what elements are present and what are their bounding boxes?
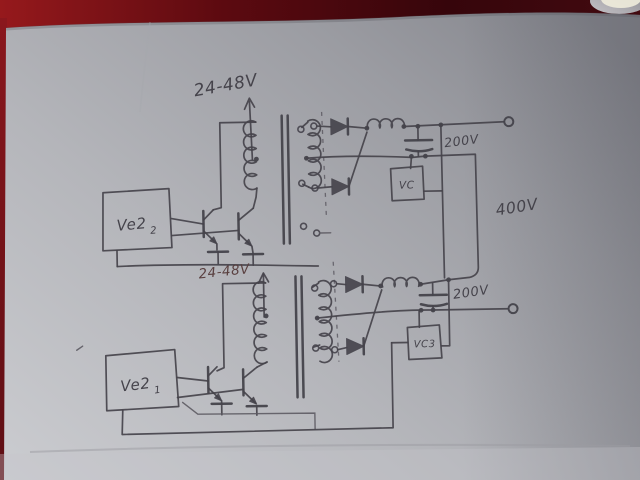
schematic-photo: 24-48V Ve2 2	[0, 0, 640, 480]
lower-driver-label-sub: 1	[154, 385, 162, 397]
upper-driver-label-sub: 2	[150, 225, 158, 237]
lower-driver-label: Ve2	[119, 374, 151, 396]
lower-controller-label: VC3	[414, 339, 436, 350]
wire	[317, 126, 331, 127]
paper-sheet-shade	[4, 13, 640, 480]
photo-of-schematic: 24-48V Ve2 2	[0, 0, 640, 480]
upper-driver-label: Ve2	[116, 214, 147, 235]
upper-controller-label: VC	[399, 179, 415, 191]
wire	[337, 284, 346, 285]
